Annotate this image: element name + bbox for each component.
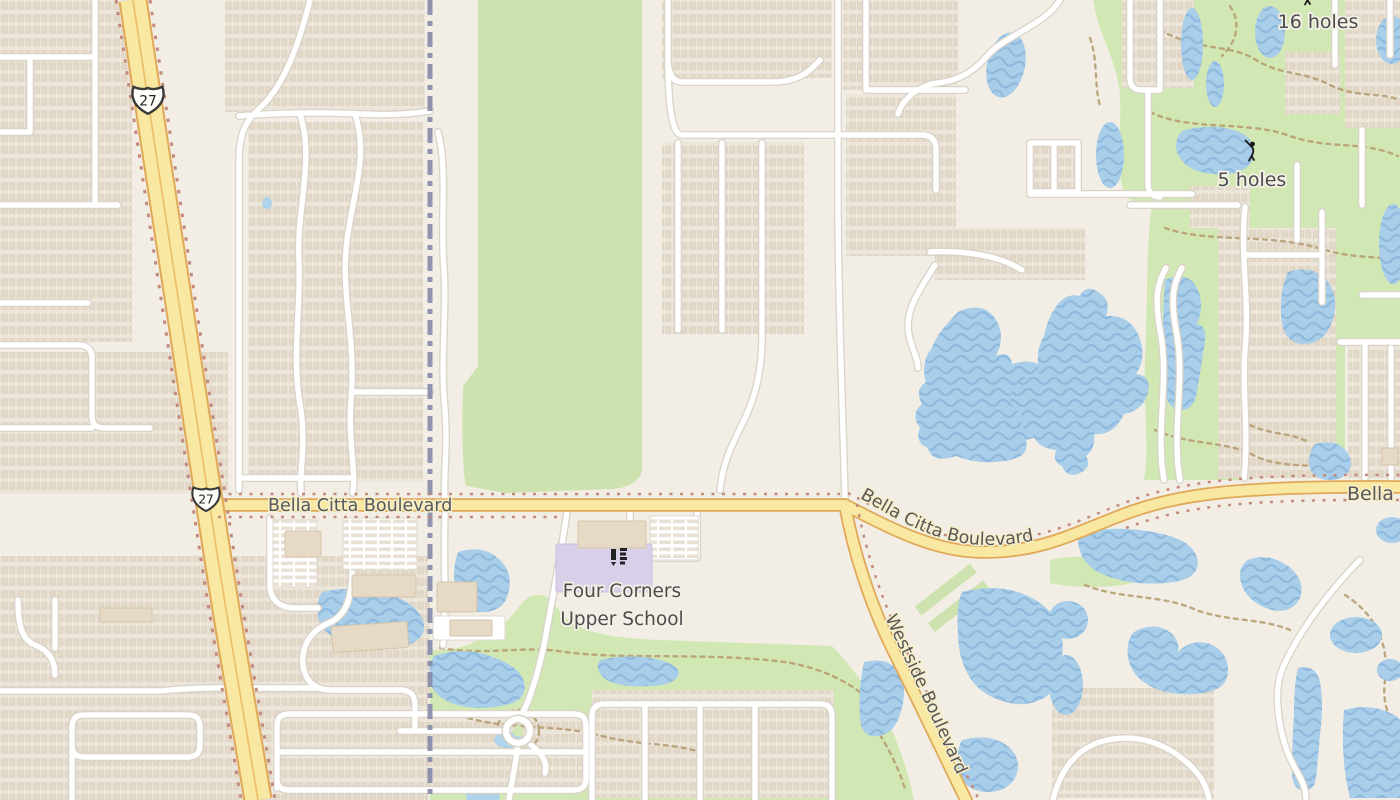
label-bella-citta-west: Bella Citta Boulevard [268,496,452,516]
map-tile-layer: 27 27 16 holes 5 holes Four Corners Uppe… [0,0,1400,800]
school-building [578,521,646,548]
central-field [462,0,642,493]
twin-lake-east [1010,289,1148,475]
label-school-line2: Upper School [560,609,683,630]
westside-lake [958,588,1063,704]
label-school-line1: Four Corners [563,581,681,602]
label-5-holes: 5 holes [1218,169,1287,191]
roundabout [506,719,530,743]
label-bella-edge: Bella [1347,483,1394,505]
heart-lake [1128,626,1228,694]
label-16-holes: 16 holes [1278,11,1359,33]
route-number: 27 [139,93,157,109]
route-number: 27 [198,493,213,507]
label-bella-citta-east: Bella Citta Boulevard [857,485,1035,550]
map-canvas[interactable]: 27 27 16 holes 5 holes Four Corners Uppe… [0,0,1400,800]
